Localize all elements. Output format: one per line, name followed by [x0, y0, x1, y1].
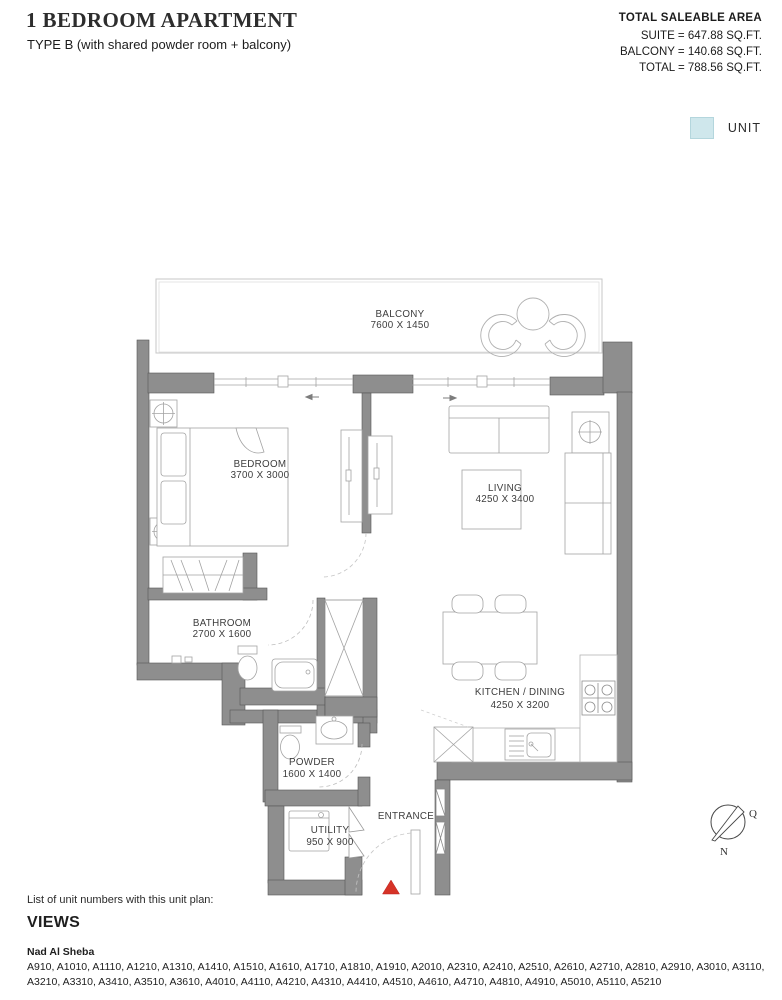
room-label-bedroom: BEDROOM: [234, 459, 287, 470]
shaft-panel-icon: [436, 822, 445, 854]
lounge-chair-icon: [545, 314, 585, 356]
shaft-icon: [325, 600, 363, 696]
vanity-icon: [172, 656, 181, 663]
chair-icon: [495, 662, 526, 680]
entry-marker-icon: [383, 880, 400, 894]
chair-icon: [452, 595, 483, 613]
dishwasher-icon: [434, 727, 473, 762]
compass-q-label: Q: [749, 808, 757, 820]
views-heading: VIEWS: [27, 914, 80, 932]
closet-icon: [368, 436, 392, 514]
shaft-panel-icon: [436, 789, 445, 816]
wardrobe-icon: [163, 557, 243, 593]
room-label-kitchen: KITCHEN / DINING: [475, 687, 565, 698]
bathroom-fixtures: [172, 600, 363, 696]
room-dims-powder: 1600 X 1400: [283, 769, 342, 780]
room-dims-utility: 950 X 900: [306, 837, 354, 848]
room-dims-bedroom: 3700 X 3000: [231, 470, 290, 481]
floor-plan: BALCONY 7600 X 1450 BEDROOM 3700 X 3000 …: [0, 0, 782, 1000]
room-label-balcony: BALCONY: [376, 309, 425, 320]
chaise-icon: [565, 453, 611, 554]
chair-icon: [452, 662, 483, 680]
views-area-name: Nad Al Sheba: [27, 946, 94, 958]
compass: Q N: [711, 805, 757, 858]
bathroom-door-arc: [268, 600, 313, 645]
side-table-lamp-icon: [572, 412, 609, 453]
living-furniture: [449, 406, 611, 554]
balcony-furniture: [481, 298, 585, 356]
room-dims-bathroom: 2700 X 1600: [193, 629, 252, 640]
window-tick-icon: [278, 376, 288, 387]
round-table-icon: [517, 298, 549, 330]
room-label-bathroom: BATHROOM: [193, 618, 251, 629]
toilet-icon: [280, 726, 301, 759]
room-dims-kitchen: 4250 X 3200: [491, 700, 550, 711]
unit-list-caption: List of unit numbers with this unit plan…: [27, 894, 213, 906]
compass-n-label: N: [720, 846, 728, 858]
chair-icon: [495, 595, 526, 613]
unit-numbers-line1: A910, A1010, A1110, A1210, A1310, A1410,…: [27, 960, 769, 975]
closet-icon: [341, 430, 362, 522]
window-arrow-icons: [306, 395, 456, 401]
lounge-chair-icon: [481, 314, 521, 356]
unit-numbers: A910, A1010, A1110, A1210, A1310, A1410,…: [27, 960, 769, 989]
room-label-utility: UTILITY: [311, 825, 350, 836]
powder-sink-icon: [316, 716, 353, 744]
dining-table-icon: [443, 612, 537, 664]
room-dims-living: 4250 X 3400: [476, 494, 535, 505]
bedroom-furniture: [150, 400, 392, 593]
sofa-icon: [449, 406, 549, 453]
unit-numbers-line2: A3210, A3310, A3410, A3510, A3610, A4010…: [27, 975, 769, 990]
counter-dashed: [421, 710, 468, 727]
entry-door-arc: [356, 833, 411, 892]
nightstand-icon: [150, 400, 177, 427]
sink-icon: [505, 729, 555, 760]
bed-icon: [157, 428, 288, 546]
room-dims-balcony: 7600 X 1450: [371, 320, 430, 331]
toilet-icon: [238, 646, 257, 680]
bifold-door-icon: [349, 807, 364, 858]
room-label-living: LIVING: [488, 483, 522, 494]
room-label-entrance: ENTRANCE: [378, 811, 434, 822]
kitchen-fixtures: [421, 595, 617, 762]
vanity-icon: [185, 657, 192, 662]
entry-door-leaf: [411, 830, 420, 894]
room-label-powder: POWDER: [289, 757, 335, 768]
window-tick-icon: [477, 376, 487, 387]
bathtub-icon: [272, 659, 317, 691]
bedroom-door-arc: [322, 533, 366, 577]
